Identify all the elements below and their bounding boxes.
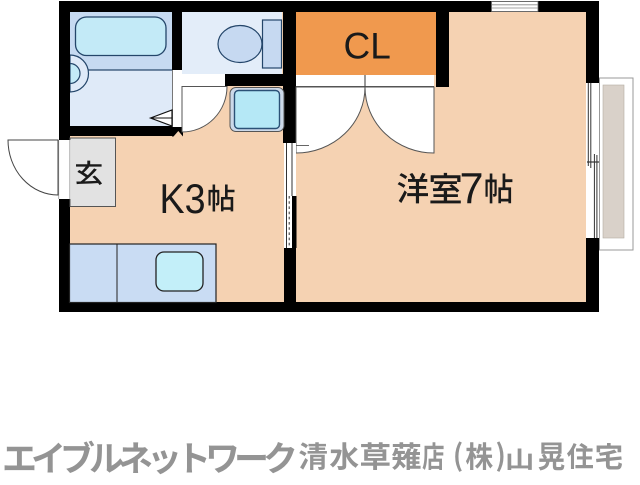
svg-text:7: 7 [460,166,484,214]
svg-text:K3: K3 [160,175,206,222]
svg-text:CL: CL [344,26,391,67]
